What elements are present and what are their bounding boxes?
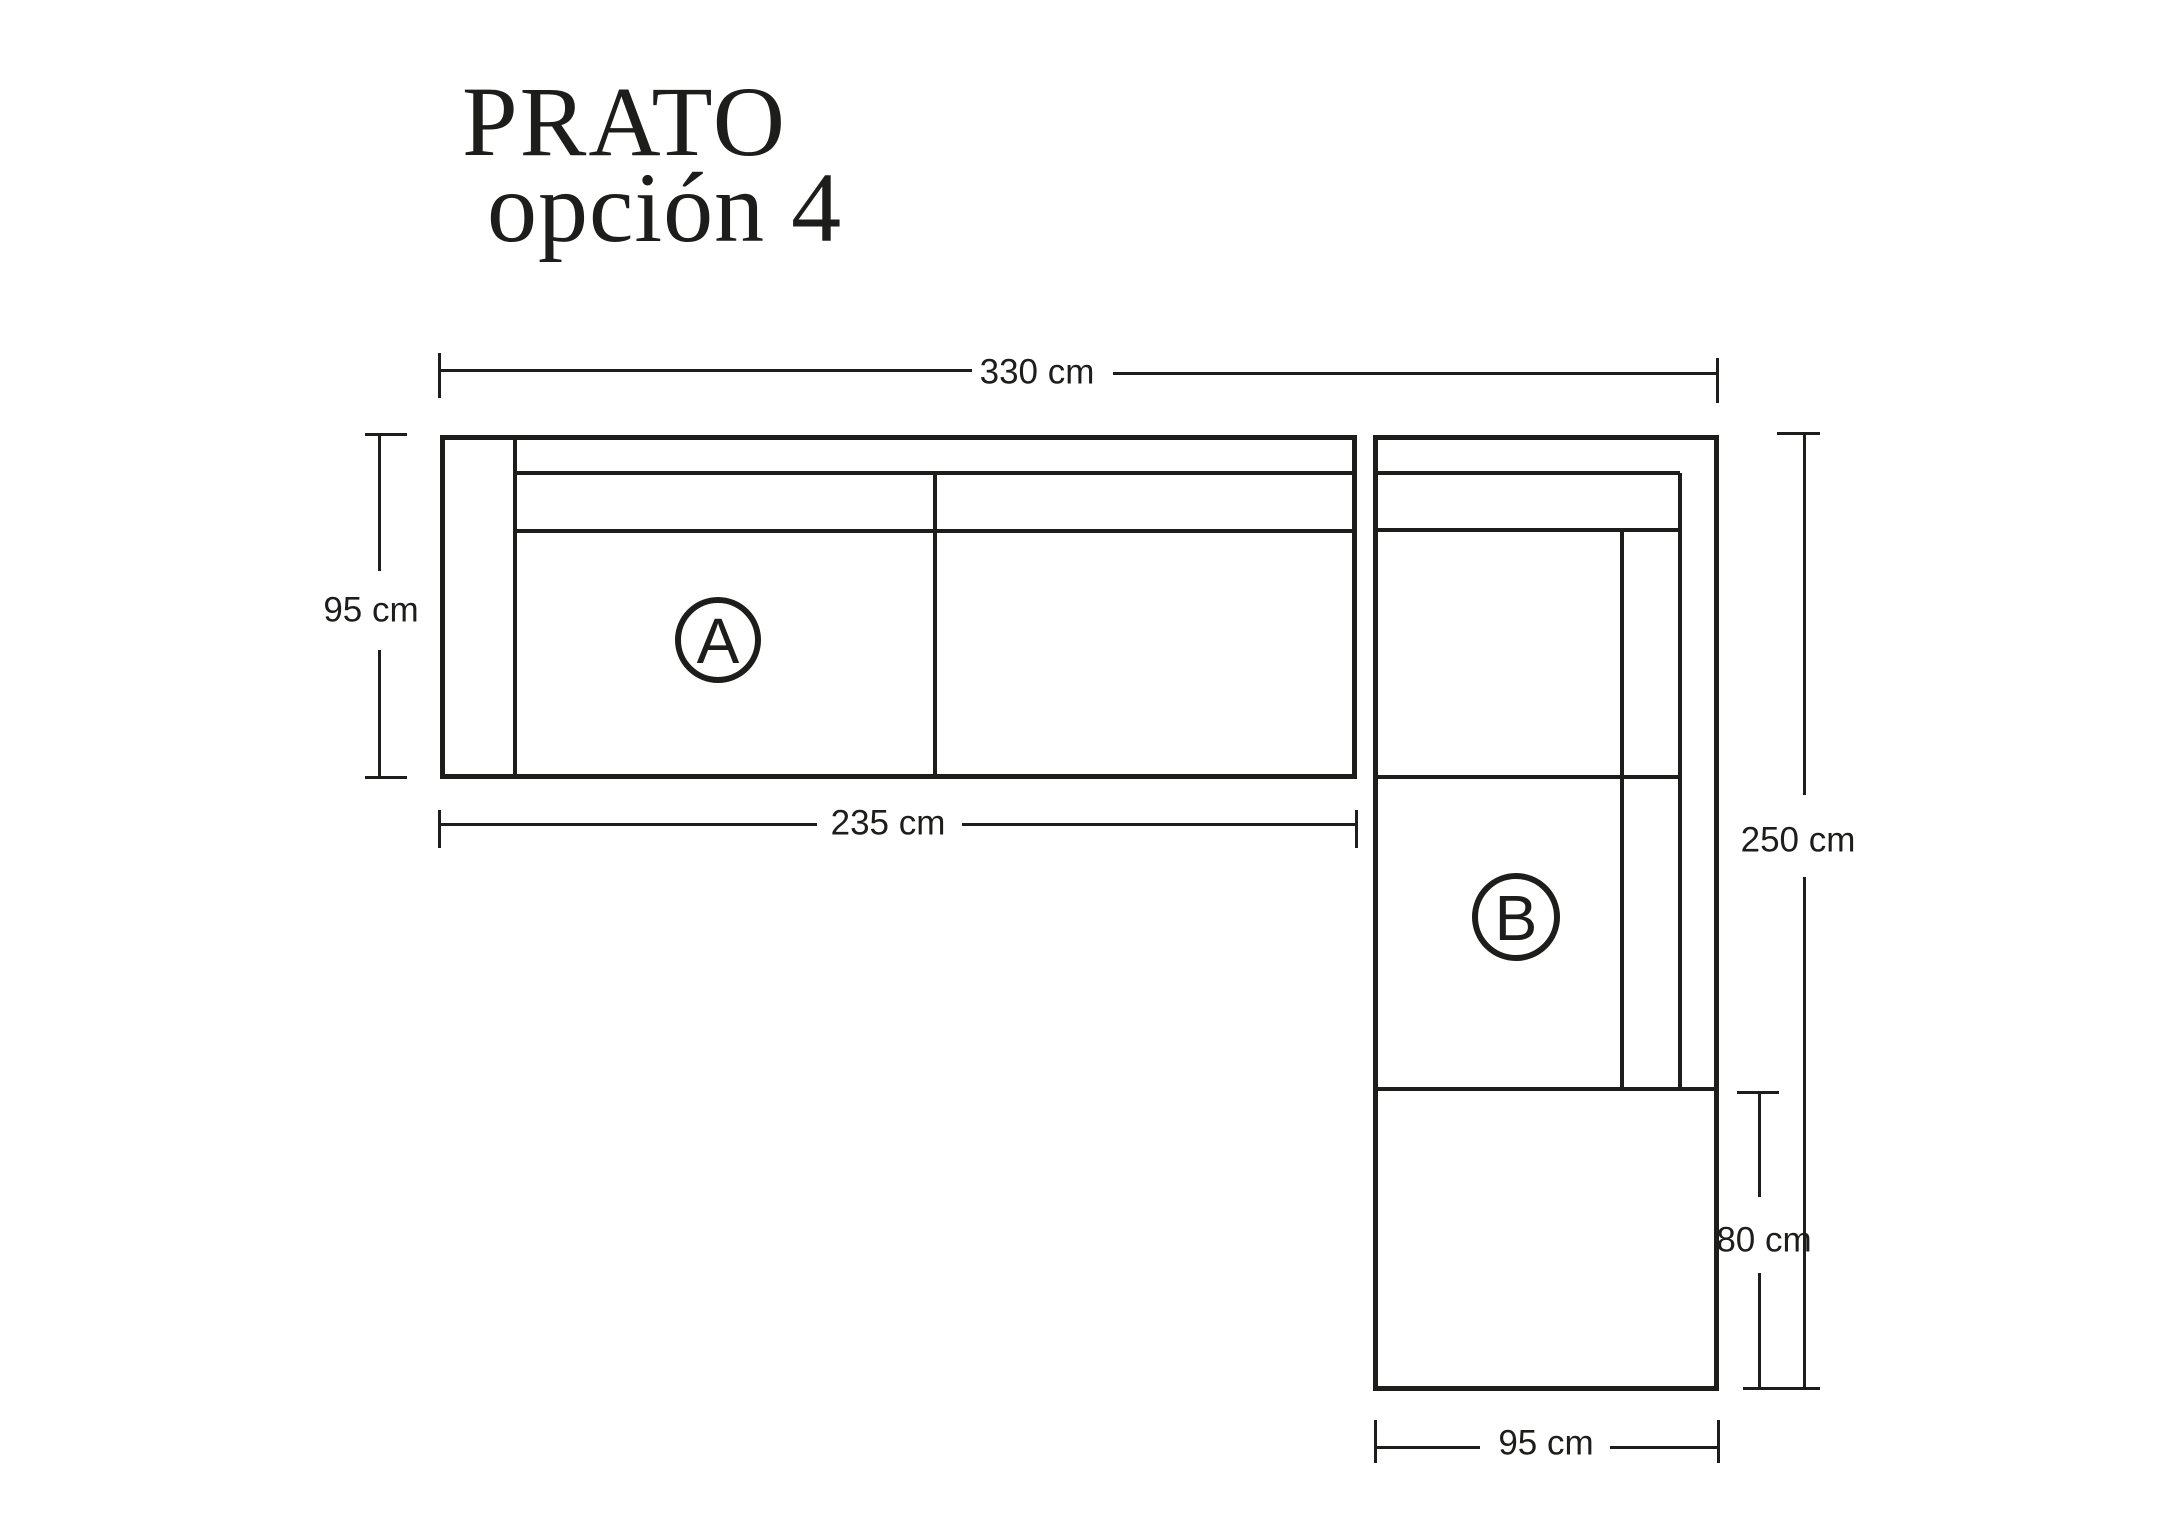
dim-330-tick-right [1716,358,1719,403]
page-subtitle: opción 4 [487,158,842,258]
dim-250-label: 250 cm [1741,823,1856,858]
dim-95l-segment-bottom [378,650,381,779]
dim-250-tick-top [1777,432,1820,435]
sofa-a-outline [440,435,1357,779]
section-b-badge: B [1472,873,1560,961]
sofa-dimension-diagram: PRATO opción 4 A B 3 [0,0,2178,1516]
dim-80-250-tick-bottom [1743,1387,1820,1390]
dim-95l-label: 95 cm [323,593,418,628]
dim-95b-segment-left [1375,1446,1480,1449]
dim-235-tick-right [1355,810,1358,848]
sofa-b-ottoman-line [1373,1087,1719,1091]
sofa-b-backrest-line-bottom [1373,528,1680,532]
dim-95b-label: 95 cm [1498,1426,1593,1461]
dim-95l-tick-bottom [365,776,407,779]
dim-330-segment-right [1113,372,1718,375]
section-a-badge: A [675,597,761,683]
dim-235-segment-right [962,823,1357,826]
dim-250-segment-bottom [1803,877,1806,1388]
sofa-b-back-frame-line [1678,473,1682,1089]
sofa-a-seat-divider-line [933,473,937,779]
dim-235-label: 235 cm [831,806,946,841]
dim-330-segment-left [439,369,972,372]
dim-95b-segment-right [1610,1446,1719,1449]
sofa-b-seat-line [1373,775,1680,779]
section-b-letter: B [1495,884,1538,950]
dim-330-tick-left [438,353,441,398]
dim-95l-segment-top [378,435,381,571]
dim-80-segment-top [1758,1093,1761,1197]
dim-95l-tick-top [365,433,407,436]
dim-235-tick-left [438,810,441,848]
dim-95b-tick-right [1717,1420,1720,1463]
dim-80-label: 80 cm [1716,1223,1811,1258]
dim-235-segment-left [439,823,817,826]
sofa-a-armrest-line [513,435,517,779]
dim-330-label: 330 cm [980,355,1095,390]
sofa-b-backrest-line-top [1373,471,1680,475]
sofa-b-back-cushion-line [1620,530,1624,1089]
dim-95b-tick-left [1374,1420,1377,1463]
dim-80-segment-bottom [1758,1273,1761,1388]
section-a-letter: A [697,607,740,673]
dim-250-segment-top [1803,434,1806,795]
